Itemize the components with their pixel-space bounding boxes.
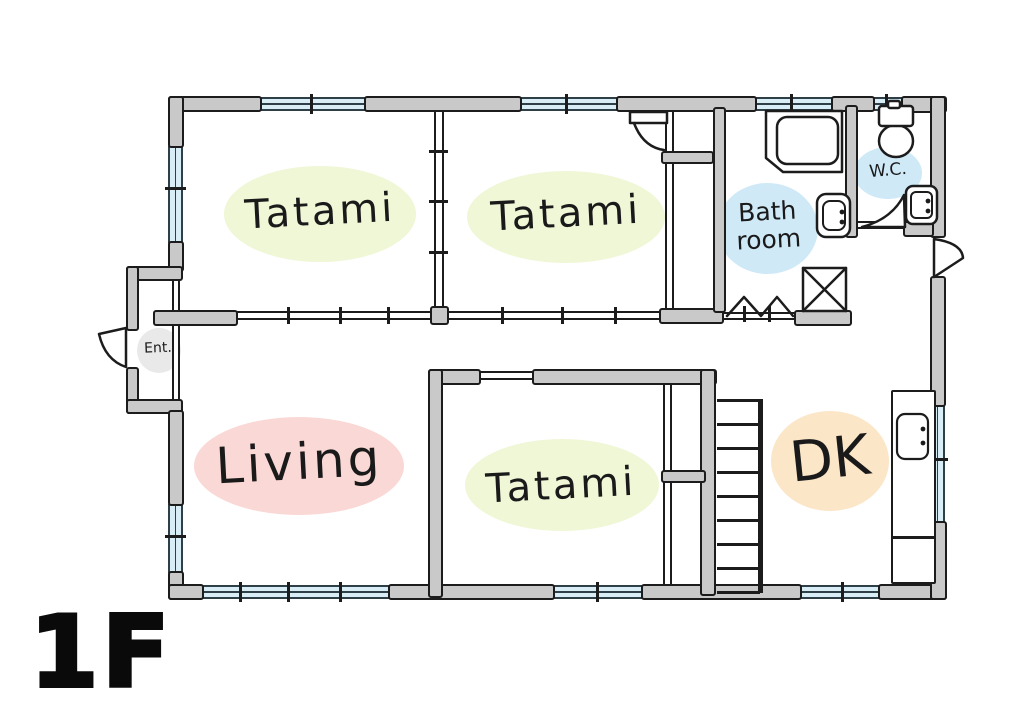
back-door-icon (934, 239, 963, 277)
closet-door-icon (630, 112, 667, 150)
room-label-tatami-nw: Tatami (244, 186, 397, 239)
wc-sink-icon (906, 186, 937, 224)
room-label-dk: DK (787, 425, 873, 496)
floor-label: 1F (30, 596, 173, 710)
room-label-tatami-ne: Tatami (490, 188, 643, 241)
kitchen-sink-icon (897, 414, 928, 459)
folding-door-icon (727, 297, 793, 316)
floor-plan: Tatami Tatami Tatami Living DK Bath room… (0, 0, 1024, 724)
room-label-wc: W.C. (868, 160, 907, 182)
room-label-bathroom: Bath room (734, 196, 802, 255)
room-label-entrance: Ent. (144, 341, 172, 358)
bathroom-sink-icon (817, 194, 850, 237)
toilet-icon (879, 101, 913, 157)
room-label-living: Living (214, 430, 383, 495)
room-label-tatami-s: Tatami (485, 460, 638, 513)
entrance-door-icon (99, 328, 126, 367)
washing-machine-icon (803, 268, 846, 311)
bathtub-icon (766, 111, 842, 172)
wc-door-icon (862, 195, 905, 227)
